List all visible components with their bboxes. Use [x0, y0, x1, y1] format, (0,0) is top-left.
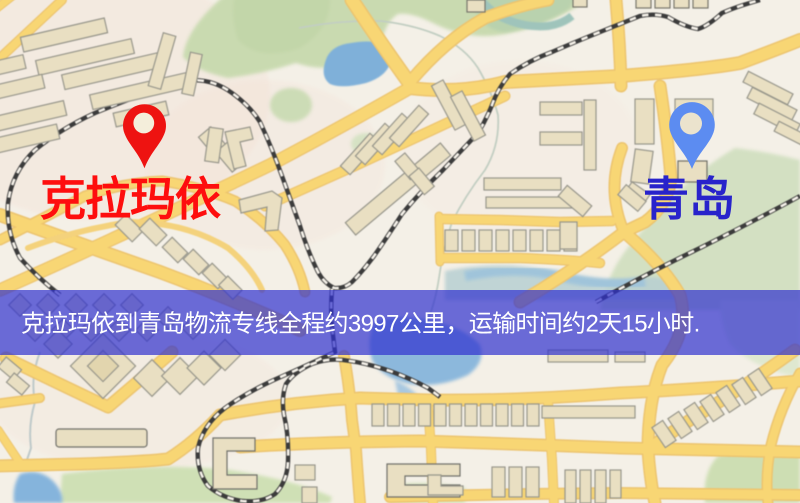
svg-text:青岛: 青岛 — [643, 173, 735, 225]
svg-text:克拉玛依到青岛物流专线全程约3997公里，运输时间约2天15: 克拉玛依到青岛物流专线全程约3997公里，运输时间约2天15小时. — [21, 311, 700, 338]
svg-text:克拉玛依: 克拉玛依 — [40, 173, 221, 225]
